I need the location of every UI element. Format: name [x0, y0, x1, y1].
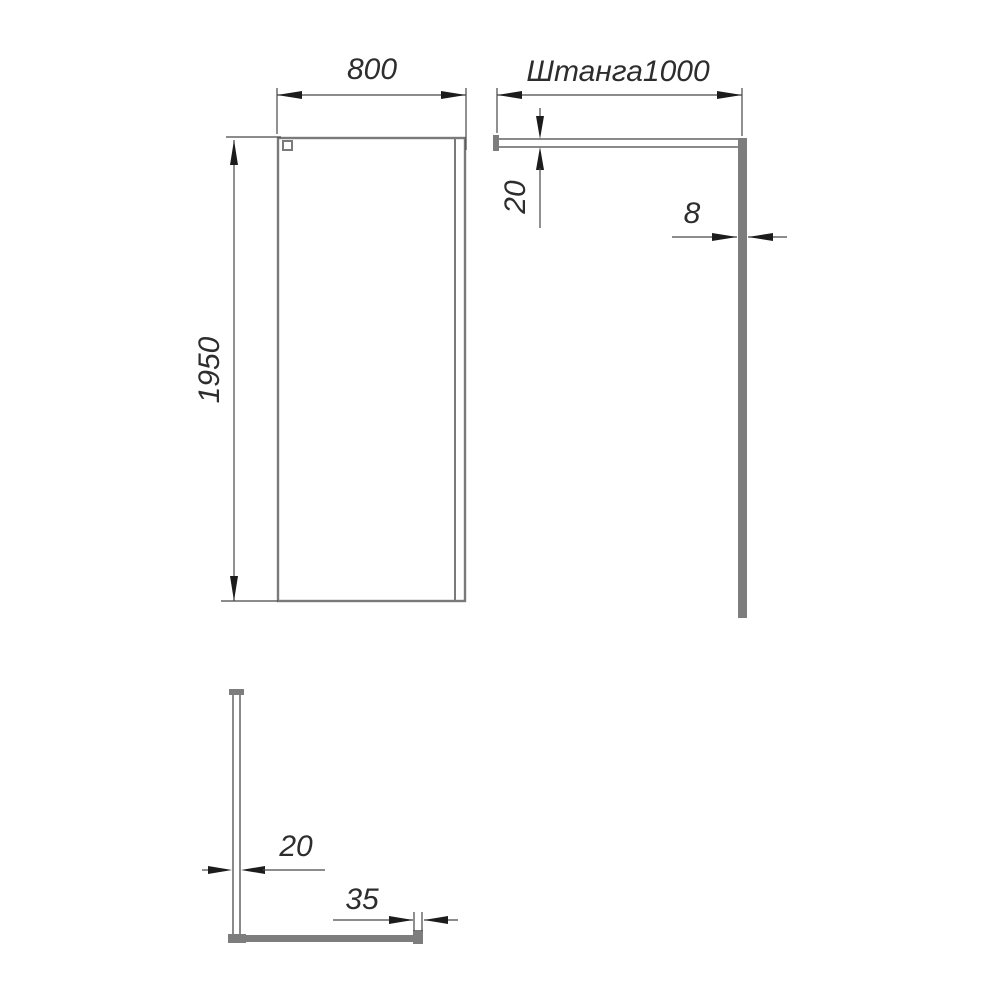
dim-bracket-width: 35 — [333, 883, 458, 931]
glass-panel-side — [738, 138, 747, 618]
glass-panel-front — [278, 138, 465, 601]
support-rod-side — [497, 139, 740, 147]
dim-rod-thickness: 20 — [499, 108, 544, 228]
arrow-right-icon — [208, 866, 232, 874]
dim-label-rod-length: Штанга1000 — [526, 55, 710, 88]
support-rod-top — [233, 694, 240, 937]
dim-label-height: 1950 — [193, 336, 226, 403]
arrow-left-icon — [497, 91, 522, 99]
arrow-right-icon — [389, 916, 413, 924]
dim-profile-width: 20 — [202, 830, 325, 874]
technical-drawing: 800 1950 Штанга1000 — [0, 0, 1000, 1000]
wall-bracket-top — [413, 930, 423, 944]
arrow-up-icon — [230, 140, 238, 165]
side-view: Штанга1000 20 8 — [493, 55, 787, 618]
dim-label-bracket-width: 35 — [345, 883, 379, 916]
arrow-left-icon — [748, 233, 773, 241]
dim-label-profile-width: 20 — [278, 830, 313, 863]
dim-width: 800 — [277, 53, 466, 150]
rod-wall-cap-side — [493, 135, 499, 151]
arrow-up-icon — [536, 147, 544, 170]
glass-panel-top — [230, 935, 414, 942]
arrow-right-icon — [441, 91, 466, 99]
dim-label-glass-thickness: 8 — [684, 197, 701, 230]
dim-rod-length: Штанга1000 — [497, 55, 742, 136]
arrow-left-icon — [424, 916, 448, 924]
arrow-down-icon — [536, 116, 544, 139]
arrow-left-icon — [277, 91, 302, 99]
rod-wall-cap-top — [229, 689, 244, 695]
arrow-right-icon — [717, 91, 742, 99]
front-view: 800 1950 — [193, 53, 466, 601]
arrow-down-icon — [230, 576, 238, 601]
dim-label-width: 800 — [347, 53, 397, 86]
dim-glass-thickness: 8 — [672, 197, 787, 241]
dim-label-rod-thickness: 20 — [499, 180, 532, 215]
rod-bracket-front — [283, 141, 292, 150]
drawing-canvas: 800 1950 Штанга1000 — [0, 0, 1000, 1000]
dim-height: 1950 — [193, 137, 281, 601]
arrow-left-icon — [241, 866, 265, 874]
arrow-right-icon — [712, 233, 737, 241]
top-view: 20 35 — [202, 689, 458, 944]
